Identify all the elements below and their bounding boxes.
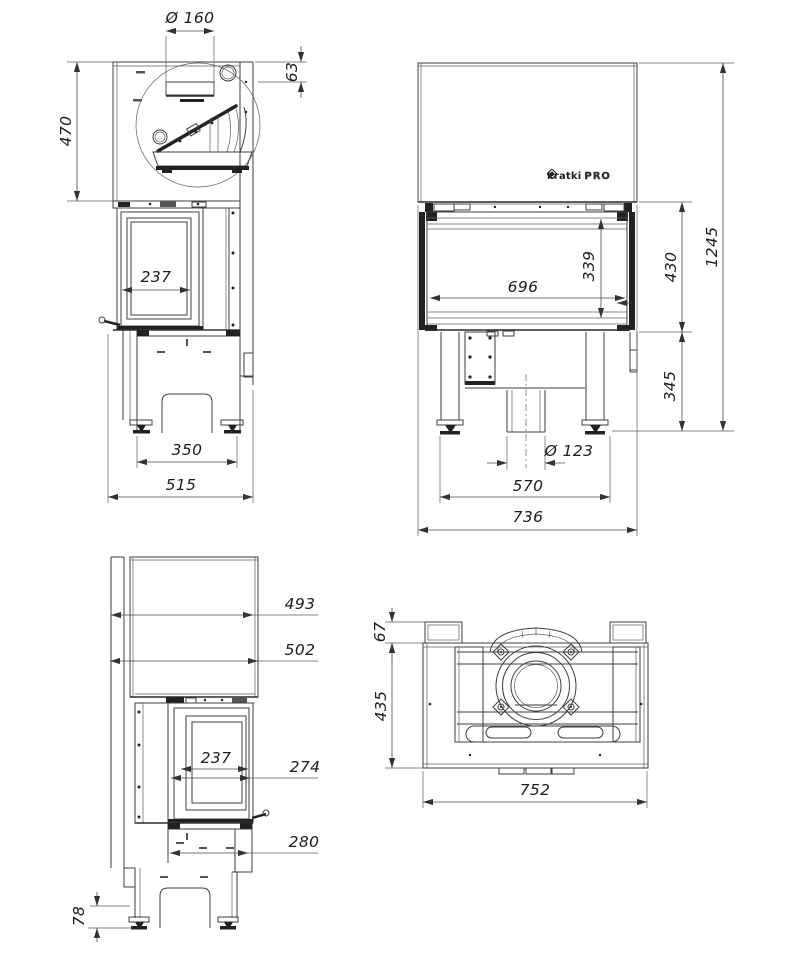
dim-overall-width: 736 — [513, 508, 544, 526]
dim-front-glass-height: 339 — [580, 251, 598, 282]
hood-side — [130, 557, 258, 697]
brand-logo: kratki PRO — [547, 169, 633, 184]
dim-side-depth-total: 515 — [166, 476, 197, 494]
technical-drawing-sheet: Ø 160 63 470 237 350 515 1245 430 339 69… — [0, 0, 800, 960]
dim-air-inlet-diameter: Ø 123 — [545, 442, 594, 460]
front-view — [418, 63, 734, 536]
dim-front-leg-span: 570 — [513, 477, 544, 495]
dim-rear-glass-width: 237 — [201, 749, 232, 767]
dim-flue-rear-offset: 63 — [283, 62, 301, 83]
door-handle — [104, 321, 120, 325]
base-arch-cutout — [160, 888, 210, 928]
base-tray — [466, 726, 620, 742]
dim-side-glass-width: 237 — [141, 268, 172, 286]
side-view-top-left — [67, 31, 307, 503]
kratki-diamond-icon — [547, 169, 557, 179]
dim-base-height: 345 — [661, 371, 679, 402]
dim-plan-rear-offset: 67 — [371, 622, 389, 643]
dim-plan-body-depth: 435 — [372, 691, 390, 722]
dim-hood-height: 470 — [57, 116, 75, 147]
dim-front-foot-span: 350 — [172, 441, 203, 459]
dim-front-glass-width: 696 — [508, 278, 539, 296]
brand-suffix: PRO — [584, 171, 611, 182]
adjustable-foot — [582, 420, 608, 435]
dim-base-depth: 280 — [289, 833, 320, 851]
flue-outlet-side — [220, 65, 236, 81]
damper-lever — [158, 106, 236, 151]
dim-door-depth: 274 — [290, 758, 321, 776]
drawing-canvas — [0, 0, 800, 960]
hood-side — [113, 62, 240, 201]
adjustable-foot — [130, 420, 152, 434]
adjustable-foot — [218, 917, 238, 930]
base-arch-cutout — [162, 394, 212, 433]
dim-overall-height: 1245 — [703, 226, 721, 267]
dim-foot-height: 78 — [70, 906, 88, 927]
dim-hood-depth-inner: 493 — [285, 595, 316, 613]
wall-bracket — [124, 868, 135, 887]
dim-flue-diameter: Ø 160 — [166, 9, 215, 27]
dim-plan-body-width: 752 — [520, 781, 551, 799]
dim-hood-depth-outer: 502 — [285, 641, 316, 659]
adjustable-foot — [129, 917, 149, 930]
wall-bracket — [244, 353, 253, 377]
rating-label — [180, 99, 204, 102]
dim-firebox-height: 430 — [662, 252, 680, 283]
plan-view — [385, 608, 648, 808]
adjustable-foot — [437, 420, 463, 435]
